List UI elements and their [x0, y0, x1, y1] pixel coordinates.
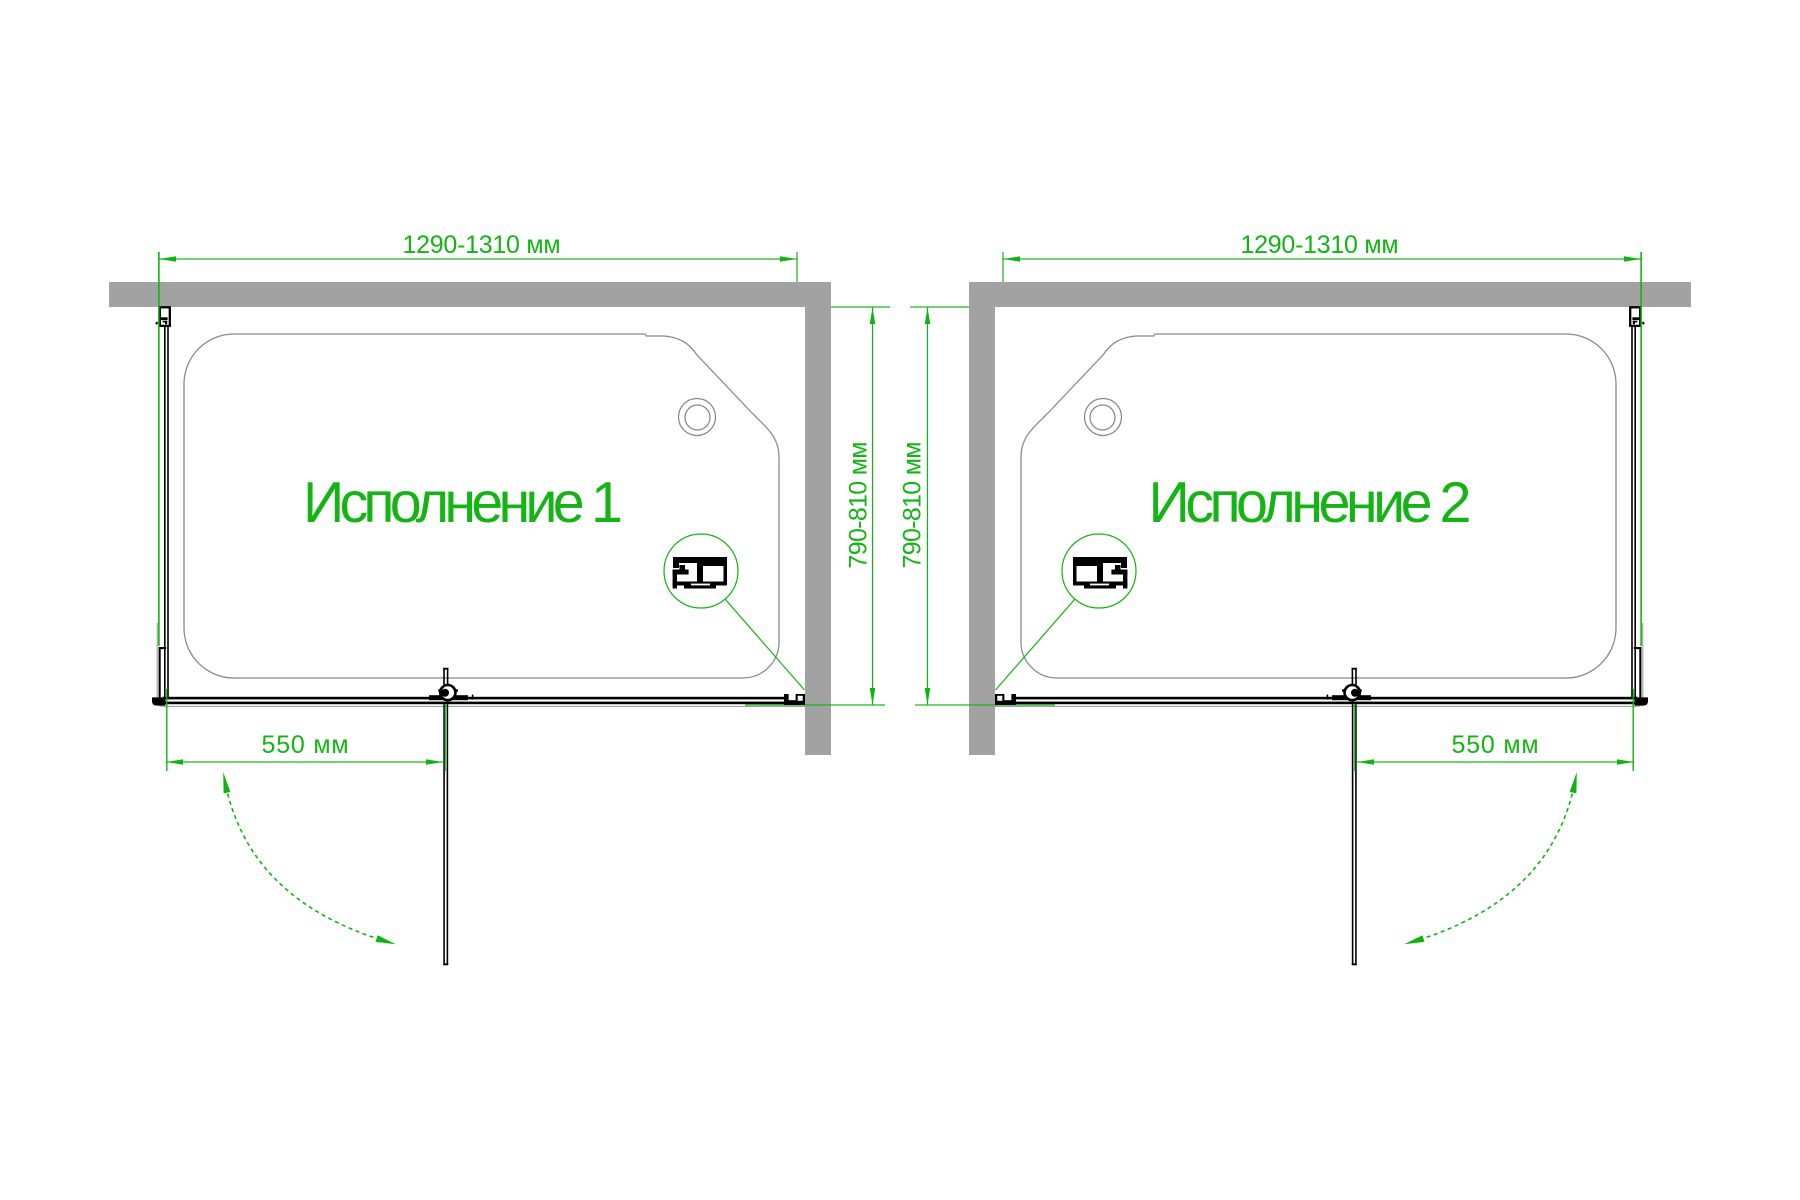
svg-text:1290-1310 мм: 1290-1310 мм: [1241, 231, 1399, 259]
svg-text:790-810 мм: 790-810 мм: [845, 442, 873, 569]
svg-text:Исполнение 2: Исполнение 2: [1149, 471, 1472, 535]
svg-text:Исполнение 1: Исполнение 1: [303, 471, 623, 535]
svg-text:790-810 мм: 790-810 мм: [899, 442, 927, 569]
svg-text:550 мм: 550 мм: [1452, 731, 1539, 759]
svg-text:550 мм: 550 мм: [262, 731, 349, 759]
svg-text:1290-1310 мм: 1290-1310 мм: [403, 231, 561, 259]
